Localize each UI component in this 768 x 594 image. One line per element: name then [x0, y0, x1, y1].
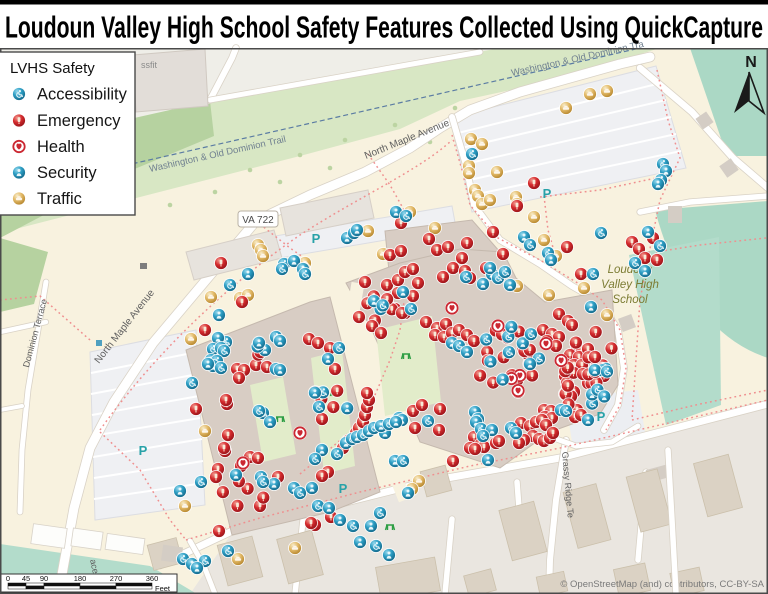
svg-text:Security: Security	[37, 164, 97, 182]
svg-text:School: School	[612, 294, 648, 306]
svg-text:N: N	[745, 54, 757, 71]
svg-text:Accessibility: Accessibility	[37, 86, 128, 104]
svg-text:360: 360	[146, 574, 159, 583]
svg-text:Loudoun Valley High School Saf: Loudoun Valley High School Safety Featur…	[5, 11, 763, 45]
svg-text:VA 722: VA 722	[242, 215, 274, 226]
svg-text:180: 180	[74, 574, 87, 583]
svg-text:LVHS Safety: LVHS Safety	[10, 60, 95, 77]
svg-text:Health: Health	[37, 138, 85, 156]
svg-text:ssfit: ssfit	[141, 60, 158, 70]
svg-text:Emergency: Emergency	[37, 112, 121, 130]
svg-text:P: P	[139, 443, 148, 458]
svg-text:© OpenStreetMap (and) contribu: © OpenStreetMap (and) contributors, CC-B…	[560, 579, 764, 590]
svg-text:45: 45	[22, 574, 30, 583]
svg-text:Traffic: Traffic	[37, 190, 82, 208]
svg-text:270: 270	[110, 574, 123, 583]
svg-text:Valley High: Valley High	[601, 279, 659, 291]
svg-text:P: P	[312, 231, 321, 246]
svg-text:0: 0	[6, 574, 10, 583]
svg-text:P: P	[339, 481, 348, 496]
svg-text:Feet: Feet	[155, 584, 171, 593]
svg-text:P: P	[543, 186, 552, 201]
svg-text:P: P	[597, 409, 606, 424]
svg-text:90: 90	[40, 574, 48, 583]
